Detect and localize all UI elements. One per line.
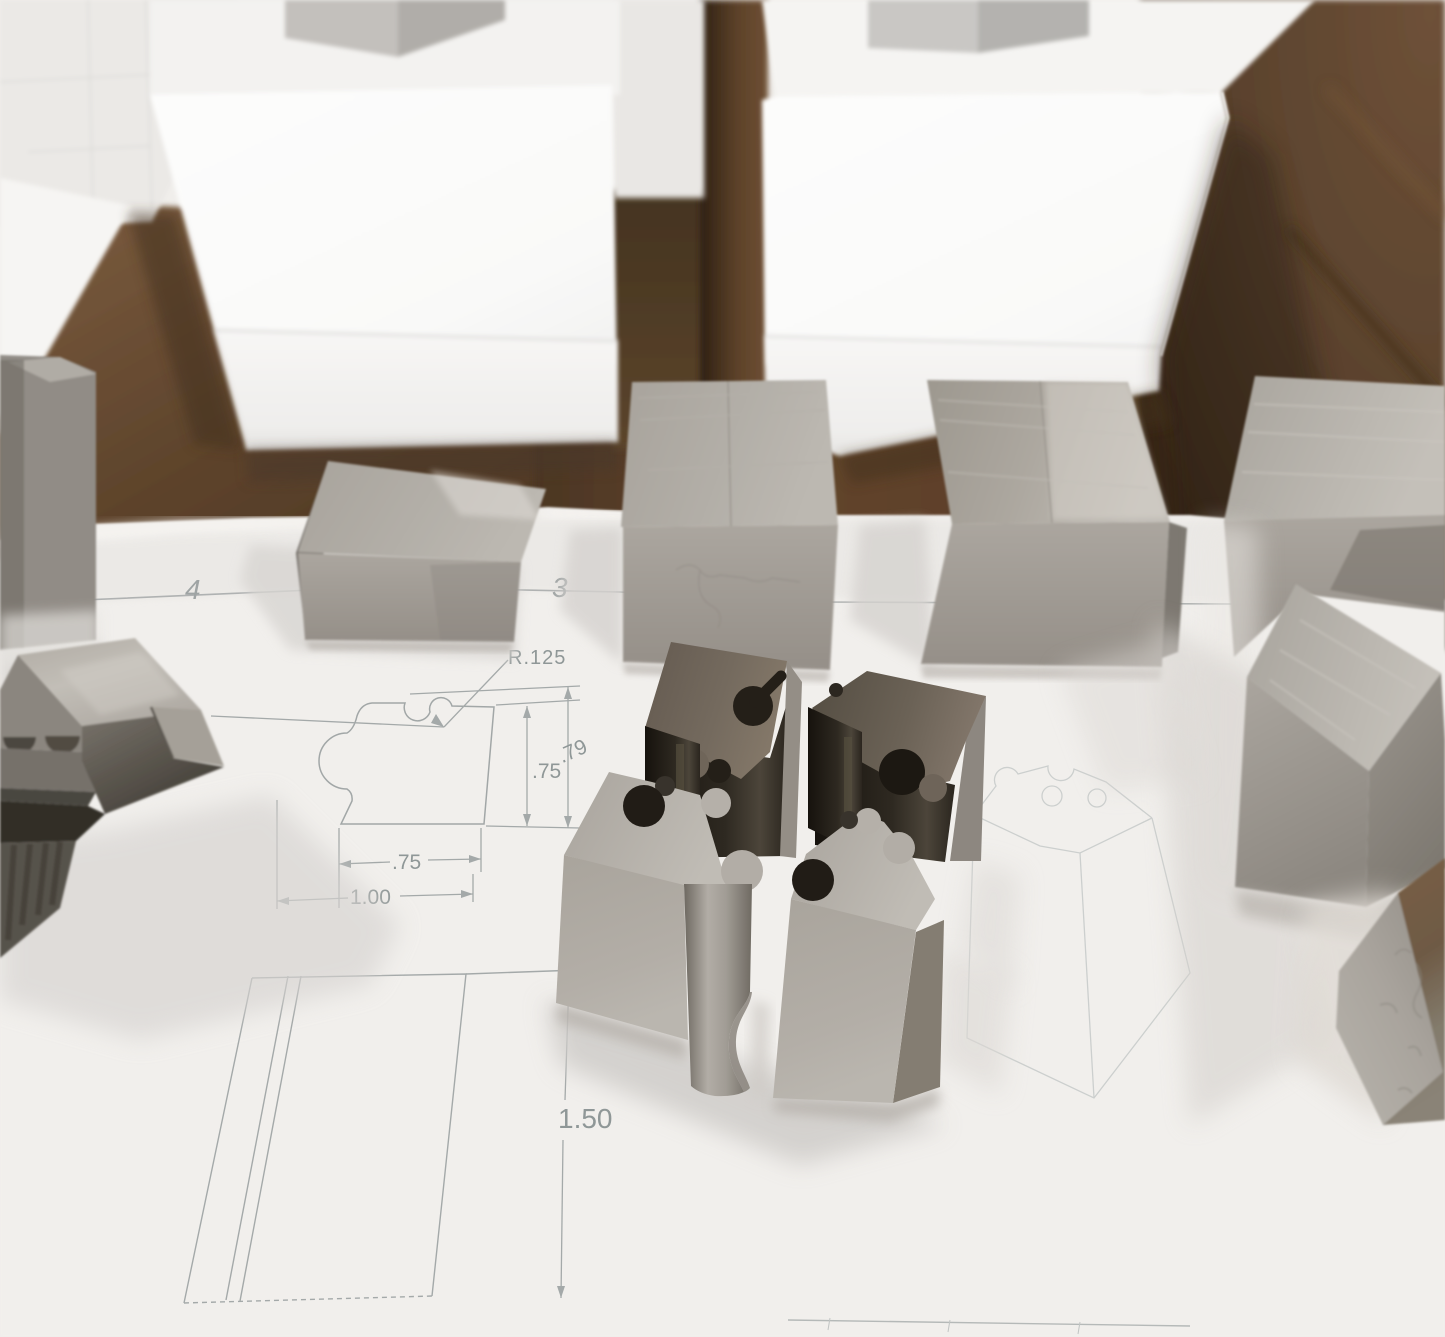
svg-text:.75: .75 <box>392 851 421 874</box>
svg-text:4: 4 <box>185 574 201 605</box>
svg-text:.75: .75 <box>532 760 561 783</box>
svg-text:1.50: 1.50 <box>558 1103 613 1134</box>
svg-text:R.125: R.125 <box>508 647 566 669</box>
